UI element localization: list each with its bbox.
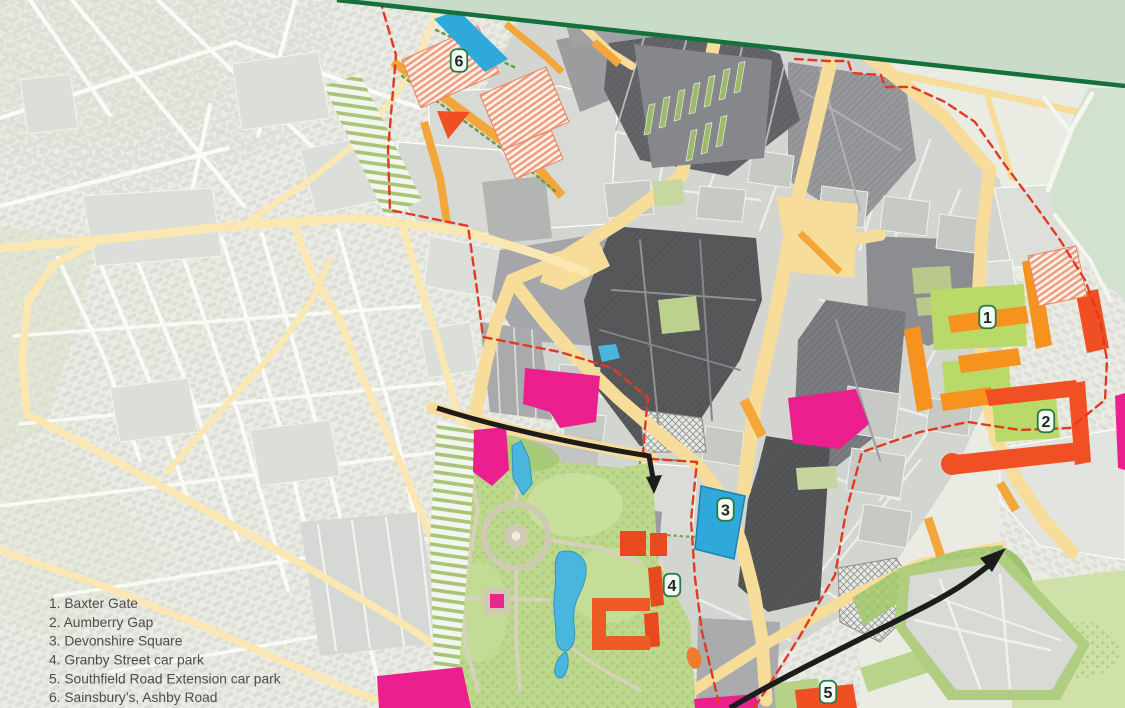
svg-text:3: 3	[721, 502, 730, 519]
svg-text:1. Baxter Gate: 1. Baxter Gate	[49, 596, 138, 611]
svg-text:5. Southfield Road Extension c: 5. Southfield Road Extension car park	[49, 671, 281, 686]
svg-text:1: 1	[983, 310, 992, 327]
svg-text:3. Devonshire Square: 3. Devonshire Square	[49, 634, 183, 649]
svg-text:2. Aumberry Gap: 2. Aumberry Gap	[49, 615, 154, 630]
svg-text:4. Granby Street car park: 4. Granby Street car park	[49, 653, 204, 668]
svg-text:2: 2	[1042, 414, 1051, 431]
svg-text:6: 6	[455, 53, 464, 70]
svg-text:4: 4	[668, 578, 677, 595]
svg-text:5: 5	[824, 685, 833, 702]
svg-text:6. Sainsbury’s, Ashby Road: 6. Sainsbury’s, Ashby Road	[49, 690, 217, 705]
